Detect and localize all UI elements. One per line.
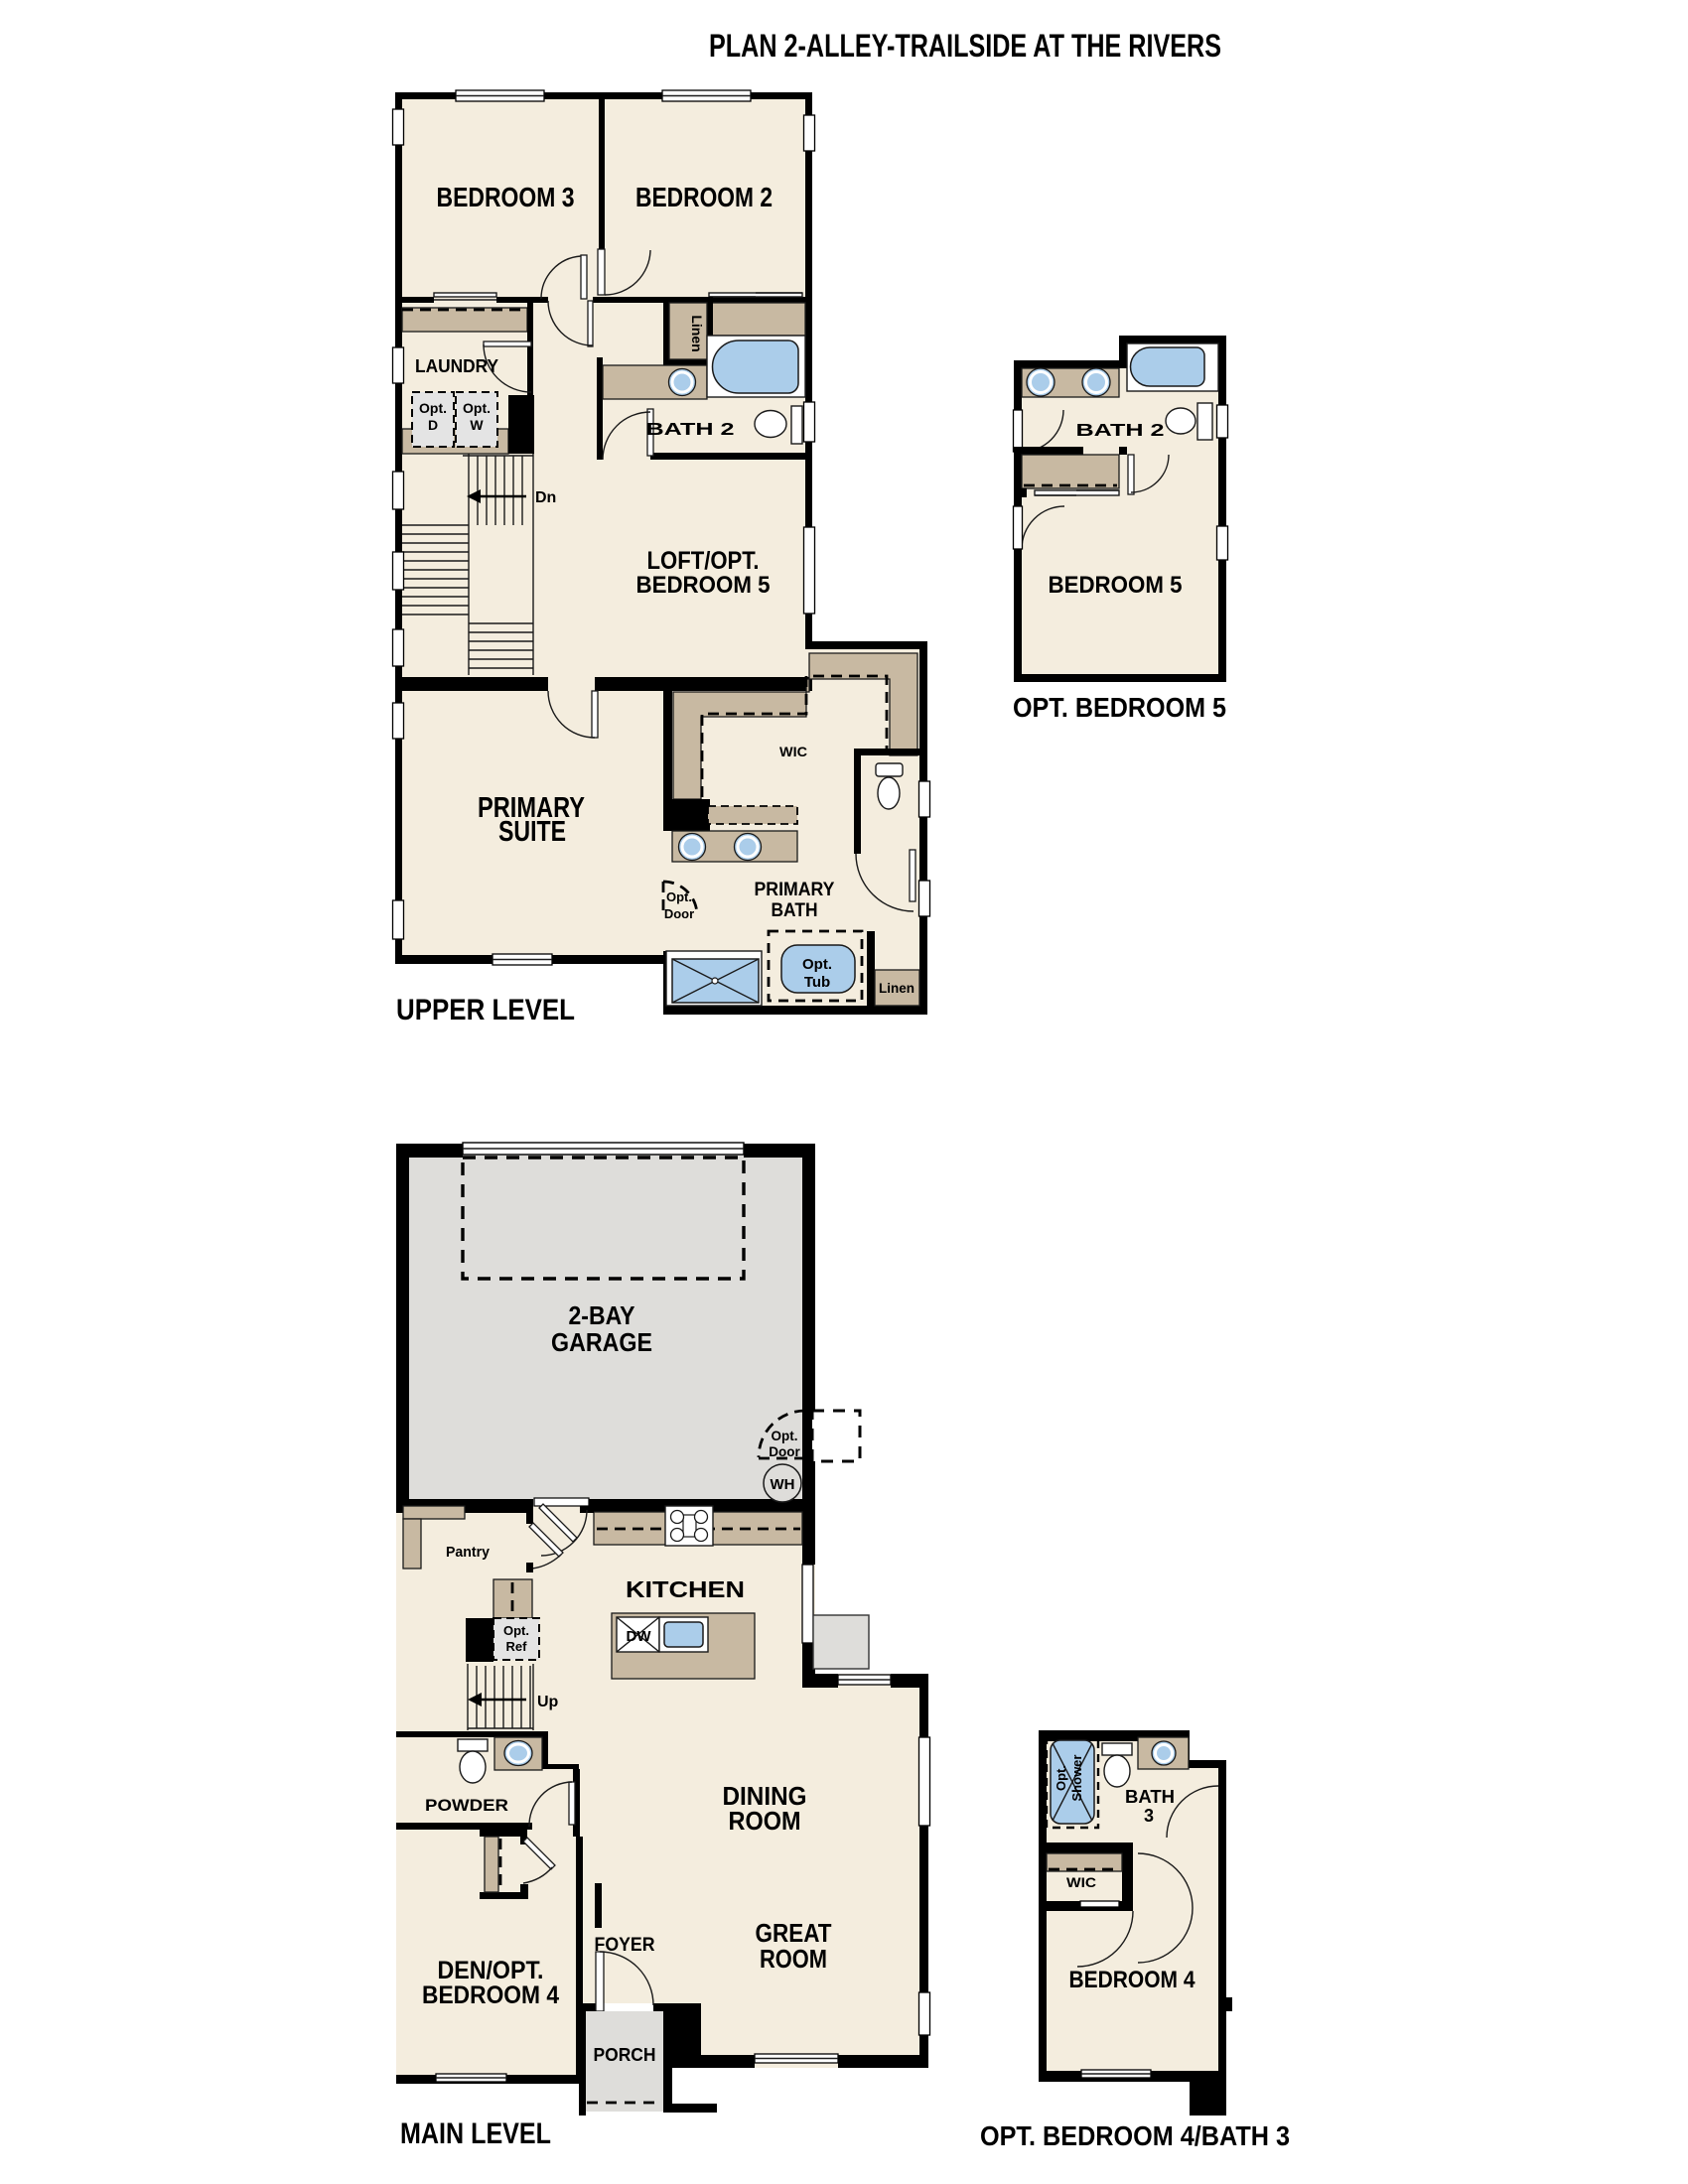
svg-text:BEDROOM 4: BEDROOM 4 (1069, 1967, 1196, 1993)
svg-text:BEDROOM 5: BEDROOM 5 (636, 572, 771, 599)
svg-text:Opt.: Opt. (503, 1623, 529, 1638)
svg-text:OPT. BEDROOM 4/BATH 3: OPT. BEDROOM 4/BATH 3 (980, 2120, 1290, 2151)
svg-text:Door: Door (664, 906, 694, 921)
svg-text:2-BAY: 2-BAY (569, 1300, 635, 1330)
svg-text:Dn: Dn (535, 489, 556, 506)
svg-text:BATH: BATH (1125, 1787, 1175, 1807)
svg-text:DEN/OPT.: DEN/OPT. (438, 1957, 544, 1984)
svg-text:WH: WH (771, 1476, 795, 1493)
svg-text:PORCH: PORCH (594, 2045, 656, 2065)
svg-text:Opt.: Opt. (772, 1429, 798, 1443)
svg-text:3: 3 (1144, 1806, 1154, 1826)
svg-text:PLAN 2-ALLEY-TRAILSIDE AT THE: PLAN 2-ALLEY-TRAILSIDE AT THE RIVERS (709, 28, 1221, 64)
svg-text:POWDER: POWDER (425, 1796, 508, 1815)
svg-text:BEDROOM 5: BEDROOM 5 (1049, 572, 1183, 599)
svg-text:DW: DW (627, 1628, 652, 1645)
svg-text:BEDROOM 4: BEDROOM 4 (422, 1981, 559, 2009)
svg-text:Opt.: Opt. (463, 400, 491, 416)
svg-text:LOFT/OPT.: LOFT/OPT. (647, 547, 760, 575)
svg-text:Door: Door (769, 1444, 800, 1459)
svg-text:WIC: WIC (779, 744, 807, 759)
svg-text:GARAGE: GARAGE (551, 1327, 652, 1357)
svg-text:Opt.: Opt. (802, 956, 832, 973)
svg-text:OPT. BEDROOM 5: OPT. BEDROOM 5 (1013, 692, 1226, 723)
svg-text:Opt.: Opt. (666, 889, 692, 904)
svg-text:ROOM: ROOM (729, 1806, 801, 1836)
svg-text:Tub: Tub (804, 974, 830, 991)
svg-text:ROOM: ROOM (760, 1944, 827, 1974)
svg-text:BEDROOM 2: BEDROOM 2 (635, 182, 773, 212)
svg-text:Shower: Shower (1069, 1755, 1084, 1802)
svg-text:MAIN LEVEL: MAIN LEVEL (400, 2117, 551, 2150)
svg-text:W: W (470, 417, 484, 433)
svg-text:D: D (428, 417, 438, 433)
svg-text:Up: Up (537, 1694, 559, 1710)
svg-text:Opt.: Opt. (419, 400, 447, 416)
svg-text:BATH 2: BATH 2 (1076, 420, 1165, 440)
svg-text:BATH 2: BATH 2 (646, 419, 735, 439)
svg-text:Linen: Linen (689, 315, 705, 351)
svg-text:Ref: Ref (506, 1639, 528, 1654)
svg-text:PRIMARY: PRIMARY (755, 880, 835, 900)
svg-text:WIC: WIC (1066, 1874, 1096, 1890)
svg-text:KITCHEN: KITCHEN (626, 1576, 745, 1602)
svg-text:Linen: Linen (879, 980, 914, 996)
svg-text:Pantry: Pantry (446, 1544, 491, 1561)
svg-text:SUITE: SUITE (498, 816, 566, 848)
svg-text:Opt.: Opt. (1054, 1765, 1068, 1791)
svg-text:UPPER LEVEL: UPPER LEVEL (396, 994, 575, 1026)
svg-text:BATH: BATH (772, 900, 818, 921)
svg-text:BEDROOM 3: BEDROOM 3 (437, 182, 575, 212)
